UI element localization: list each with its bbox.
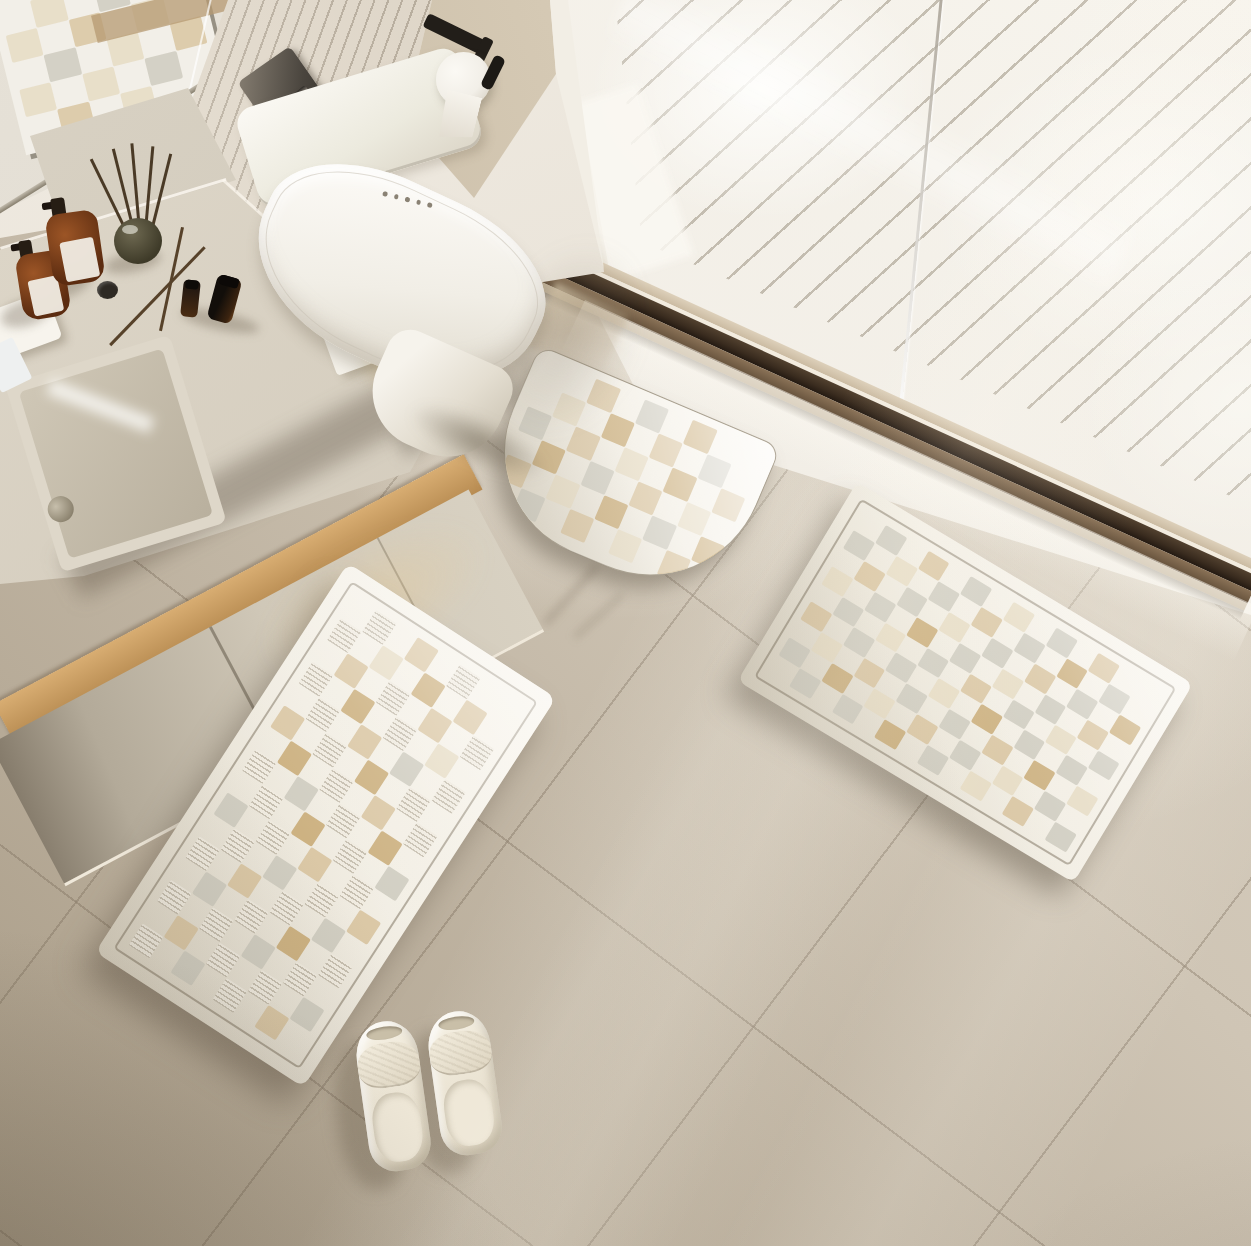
mat-square <box>151 78 189 113</box>
mat-square <box>843 627 875 658</box>
toilet-button-dot <box>427 202 432 207</box>
mat-square <box>212 978 247 1013</box>
mat-square <box>234 899 269 934</box>
mat-square <box>832 694 864 725</box>
mat-square <box>917 599 949 630</box>
toilet-paper-holder-hook <box>480 54 506 91</box>
mat-square <box>1067 689 1099 720</box>
mat-square <box>291 811 326 846</box>
mat-square <box>1088 702 1120 733</box>
mat-square <box>542 416 576 450</box>
mat-square <box>659 410 693 444</box>
mat-square <box>248 877 283 912</box>
wall-marble-sliver <box>0 0 1251 1246</box>
mat-sheen <box>738 482 1193 883</box>
floor-light-patch <box>330 220 910 620</box>
mat-square <box>269 891 304 926</box>
toilet-base <box>354 322 520 475</box>
mat-square <box>853 609 885 640</box>
mat-square <box>701 512 735 546</box>
mat-square <box>305 790 340 825</box>
mat-square <box>512 488 546 522</box>
mat-square <box>907 666 939 697</box>
mat-square <box>403 822 438 857</box>
mat-square <box>213 885 248 920</box>
mat-square <box>992 717 1024 748</box>
mat-square <box>389 844 424 879</box>
mat-square <box>375 773 410 808</box>
mat-square <box>601 413 635 447</box>
mat-square <box>875 525 907 556</box>
mat-square <box>234 806 269 841</box>
mat-square <box>959 771 991 802</box>
floor-light-patch <box>700 400 1251 840</box>
glass-reflection-streak <box>604 0 1139 296</box>
global-sunlight-overlay <box>0 0 1251 1246</box>
mat-square <box>411 672 446 707</box>
mat-square <box>885 653 917 684</box>
mat-square <box>347 724 382 759</box>
mat-square <box>971 656 1003 687</box>
slipper-footbed <box>441 1077 497 1149</box>
mat-square <box>949 740 981 771</box>
mat-square <box>864 689 896 720</box>
floor-tile-grout-grid <box>0 0 1251 1246</box>
mat-square <box>44 47 82 82</box>
slipper-footbed <box>369 1090 425 1165</box>
mat-square <box>508 430 542 464</box>
mat-square <box>874 671 906 702</box>
mat-square <box>667 526 701 560</box>
mat-square <box>249 784 284 819</box>
mat-square <box>89 94 127 129</box>
mat-square <box>1109 666 1141 697</box>
mat-square <box>113 59 151 94</box>
mat-square <box>332 931 367 966</box>
mat-square <box>528 382 562 416</box>
mat-square <box>896 732 928 763</box>
mat-square <box>326 711 361 746</box>
toilet-contour-mat <box>470 345 781 611</box>
mat-square <box>396 694 431 729</box>
mat-square <box>522 464 556 498</box>
vignette-shadow <box>0 0 1251 1246</box>
under-cabinet-glow <box>236 488 513 711</box>
mat-square <box>1131 679 1163 710</box>
mat-square <box>1024 712 1056 743</box>
toilet-base-shadow <box>401 390 558 495</box>
mat-square <box>213 792 248 827</box>
mat-sheen <box>472 346 780 610</box>
mat-square <box>57 102 95 137</box>
mat-square <box>687 478 721 512</box>
vanity-side-block <box>311 278 405 376</box>
mat-square <box>992 620 1024 651</box>
mat-square <box>854 512 886 543</box>
mat-square <box>711 488 745 522</box>
mat-square <box>960 576 992 607</box>
mat-square <box>1013 632 1045 663</box>
mat-square <box>199 814 234 849</box>
essential-oil-bottle <box>180 279 201 318</box>
mat-square <box>1088 653 1120 684</box>
mat-square <box>885 604 917 635</box>
mat-square <box>1013 681 1045 712</box>
counter-edge-highlight <box>0 178 227 250</box>
mirror-reflected-glass-line <box>181 0 212 123</box>
mat-square <box>1035 694 1067 725</box>
mat-square <box>821 566 853 597</box>
shower-floor <box>0 0 1251 1246</box>
mat-square <box>896 586 928 617</box>
shower-threshold <box>533 243 1251 623</box>
mat-square <box>143 901 178 936</box>
mat-square <box>864 640 896 671</box>
mat-square <box>37 20 75 55</box>
cabinet-floor-shadow <box>60 354 462 598</box>
mat-square <box>26 109 64 144</box>
mat-square <box>896 635 928 666</box>
mat-square <box>821 663 853 694</box>
mat-square <box>800 650 832 681</box>
mat-square <box>1045 725 1077 756</box>
mat-square <box>917 696 949 727</box>
mat-square <box>587 379 621 413</box>
wall-marble <box>0 0 1251 1246</box>
mat-square <box>939 563 971 594</box>
toilet-paper-tail <box>436 89 483 144</box>
toilet-mat-wrapper <box>0 0 1251 1246</box>
mat-square <box>171 858 206 893</box>
mat-square <box>163 0 201 24</box>
mat-square <box>938 758 970 789</box>
pump-nozzle <box>42 201 61 210</box>
mat-square <box>220 921 255 956</box>
mat-square <box>885 702 917 733</box>
mat-square <box>768 655 800 686</box>
vanity-backsplash <box>0 0 1251 1246</box>
mat-square <box>1056 658 1088 689</box>
mat-square <box>319 768 354 803</box>
mat-square <box>789 620 821 651</box>
crossed-stick <box>159 227 183 331</box>
mat-square <box>275 1019 310 1054</box>
mat-square <box>305 697 340 732</box>
mat-square <box>270 705 305 740</box>
mat-square <box>298 662 333 697</box>
mat-square <box>576 403 610 437</box>
mat-square <box>276 833 311 868</box>
mat-square <box>992 766 1024 797</box>
sink-basin <box>19 348 213 558</box>
mat-square <box>93 0 131 12</box>
mat-square <box>864 543 896 574</box>
mat-square <box>325 896 360 931</box>
mat-square <box>334 653 369 688</box>
mat-square <box>62 0 100 20</box>
mat-square <box>971 607 1003 638</box>
mat-square <box>227 956 262 991</box>
mat-square <box>1024 663 1056 694</box>
mat-square <box>487 478 521 512</box>
mat-square <box>928 581 960 612</box>
mat-square <box>263 762 298 797</box>
bathroom-photo <box>0 0 1251 1246</box>
mat-square <box>313 640 348 675</box>
mat-square <box>691 536 725 570</box>
mat-square <box>283 869 318 904</box>
mat-square <box>811 584 843 615</box>
mat-square <box>970 704 1002 735</box>
mat-square <box>474 713 509 748</box>
mat-square <box>611 389 645 423</box>
mat-square <box>368 831 403 866</box>
bottle-label <box>27 275 64 316</box>
mat-square <box>361 702 396 737</box>
mat-square <box>532 440 566 474</box>
mat-square <box>228 771 263 806</box>
mat-square <box>907 568 939 599</box>
mat-square <box>778 638 810 669</box>
mat-square <box>707 430 741 464</box>
jar-glint <box>122 225 138 234</box>
mat-square <box>928 727 960 758</box>
mat-square <box>566 427 600 461</box>
mat-square <box>810 681 842 712</box>
mat-square <box>1045 773 1077 804</box>
mat-square <box>1024 760 1056 791</box>
mat-square <box>590 437 624 471</box>
toilet-shadow <box>462 218 673 458</box>
diffuser-shadow <box>103 246 164 278</box>
mat-square <box>396 787 431 822</box>
mat-square <box>75 39 113 74</box>
mat-square <box>917 745 949 776</box>
mat-square <box>843 530 875 561</box>
mat-square <box>853 658 885 689</box>
warm-light-glow <box>356 306 456 406</box>
mat-square <box>604 471 638 505</box>
mat-square <box>410 765 445 800</box>
mat-square <box>326 803 361 838</box>
diffuser-reed <box>112 149 138 243</box>
mat-square <box>896 538 928 569</box>
mat-square <box>632 540 666 574</box>
mat-square <box>12 55 50 90</box>
toilet-button-dot <box>405 197 410 202</box>
shower-lit-marble-strip <box>556 83 693 281</box>
mat-square <box>518 406 552 440</box>
mat-square <box>950 594 982 625</box>
mat-square <box>185 836 220 871</box>
mat-square <box>875 622 907 653</box>
mat-square <box>546 475 580 509</box>
mat-square <box>832 548 864 579</box>
mat-square <box>538 358 572 392</box>
mat-square <box>170 951 205 986</box>
mat-square <box>178 893 213 928</box>
sunlight-patch <box>1080 260 1251 540</box>
pump-nozzle <box>10 242 27 251</box>
left-mat-wrapper <box>0 0 1251 1246</box>
amber-pump-bottle <box>10 234 76 321</box>
mat-square <box>1055 804 1087 835</box>
sunlight-patch <box>590 0 930 220</box>
mat-square <box>949 643 981 674</box>
mat-square <box>360 888 395 923</box>
toilet-button-dots <box>382 191 432 208</box>
mat-checker-grid <box>128 596 522 1054</box>
mat-square <box>340 689 375 724</box>
mat-square <box>683 420 717 454</box>
toilet-tank <box>233 44 485 211</box>
wall-floor-junction <box>166 164 314 265</box>
bottle-body <box>44 209 106 288</box>
mat-border-line <box>113 581 538 1069</box>
threshold-strip <box>554 252 1251 577</box>
right-mat-wrapper <box>0 0 1251 1246</box>
counter-papers <box>0 337 32 393</box>
mat-square <box>811 632 843 663</box>
mat-square <box>277 741 312 776</box>
mat-square <box>560 509 594 543</box>
sink <box>5 335 227 573</box>
branch-shadow <box>573 593 624 640</box>
mat-square <box>1066 737 1098 768</box>
mat-square <box>446 664 481 699</box>
mat-square <box>199 907 234 942</box>
mat-square <box>649 434 683 468</box>
mat-square <box>164 915 199 950</box>
mat-square <box>206 942 241 977</box>
mat-square <box>459 735 494 770</box>
mat-square <box>864 591 896 622</box>
mat-square <box>283 961 318 996</box>
mat-square <box>290 904 325 939</box>
toilet-button-dot <box>416 199 421 204</box>
mat-square <box>1024 615 1056 646</box>
mat-square <box>333 746 368 781</box>
mat-square <box>853 707 885 738</box>
toilet-paper-holder-bar <box>422 13 488 55</box>
right-checkered-bath-mat <box>738 482 1193 883</box>
mat-square <box>318 861 353 896</box>
mat-square <box>832 597 864 628</box>
mat-square <box>254 1005 289 1040</box>
mat-square <box>0 1 37 36</box>
mat-square <box>982 589 1014 620</box>
mat-square <box>145 51 183 86</box>
mat-square <box>721 464 755 498</box>
mat-square <box>992 668 1024 699</box>
sunlight-patch <box>930 40 1251 370</box>
mat-square <box>1034 743 1066 774</box>
mat-square <box>82 67 120 102</box>
mat-square <box>681 560 715 594</box>
mat-square <box>642 516 676 550</box>
mat-square <box>981 783 1013 814</box>
mat-square <box>789 668 821 699</box>
mat-square <box>368 738 403 773</box>
slipper-opening <box>366 1024 403 1042</box>
mat-square <box>289 997 324 1032</box>
mat-square <box>552 393 586 427</box>
mirror-reflected-mat <box>0 0 232 155</box>
mat-square <box>1120 697 1152 728</box>
reed-diffuser-jar <box>114 218 162 264</box>
mat-square <box>262 855 297 890</box>
mat-square <box>939 612 971 643</box>
mat-square <box>362 610 397 645</box>
mat-square <box>311 918 346 953</box>
mat-square <box>949 691 981 722</box>
mat-square <box>615 447 649 481</box>
mat-square <box>907 617 939 648</box>
mat-square <box>404 637 439 672</box>
mat-square <box>298 754 333 789</box>
mat-square <box>1088 750 1120 781</box>
mat-square <box>1056 707 1088 738</box>
threshold-endcap <box>527 282 629 379</box>
mat-square <box>255 820 290 855</box>
counter-floor-shadow <box>392 371 521 459</box>
threshold-shadow <box>535 289 1244 619</box>
mat-square <box>731 440 765 474</box>
mat-square <box>432 686 467 721</box>
threshold-floor-glow <box>560 300 1251 661</box>
mat-square <box>425 651 460 686</box>
toilet-button-dot <box>393 194 398 199</box>
pump-cap <box>50 197 67 223</box>
oil-cap <box>185 279 199 289</box>
mat-square <box>346 910 381 945</box>
mat-square <box>928 679 960 710</box>
threshold-strip-bronze <box>542 270 1251 603</box>
mat-square <box>192 871 227 906</box>
mat-square <box>1002 748 1034 779</box>
toilet-lid <box>225 130 572 421</box>
mat-square <box>227 863 262 898</box>
diffuser-reed <box>130 143 141 242</box>
mat-square <box>1023 809 1055 840</box>
mat-square <box>220 828 255 863</box>
mat-square <box>284 776 319 811</box>
mat-square <box>304 882 339 917</box>
mat-square <box>348 632 383 667</box>
mat-square <box>138 24 176 59</box>
mat-square <box>347 817 382 852</box>
mat-square <box>677 502 711 536</box>
mat-square <box>424 743 459 778</box>
mat-square <box>438 722 473 757</box>
mat-square <box>191 964 226 999</box>
floor-sun-streaks <box>0 0 1251 1246</box>
mat-square <box>241 841 276 876</box>
mat-square <box>339 874 374 909</box>
mat-square <box>928 630 960 661</box>
toilet-paper-wall <box>0 0 1251 1246</box>
mat-square <box>185 929 220 964</box>
mat-square <box>247 970 282 1005</box>
toilet-flush-plate <box>237 46 342 158</box>
mat-square <box>369 645 404 680</box>
mat-checker-grid <box>487 358 765 594</box>
mat-square <box>297 940 332 975</box>
slipper-strap <box>427 1027 494 1078</box>
mat-checker-grid <box>768 512 1163 852</box>
mat-square <box>842 676 874 707</box>
mirror-edge-strip <box>0 0 338 214</box>
